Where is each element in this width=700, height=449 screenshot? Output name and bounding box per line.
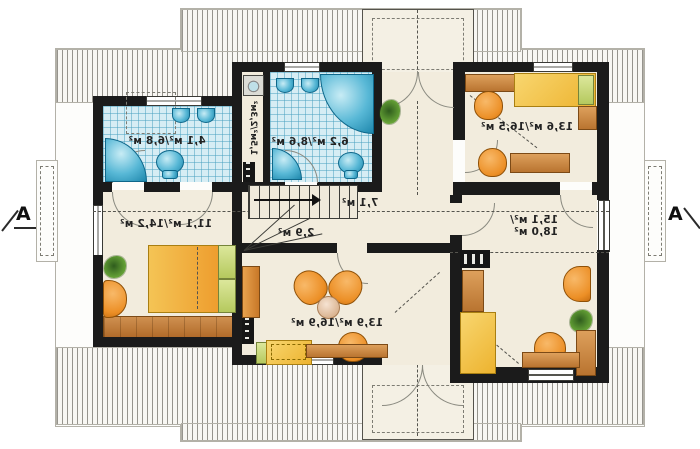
wall-bedroom-top-right-bottom-a [453, 182, 560, 195]
desk-living [306, 344, 388, 358]
chair-top-right-1 [474, 91, 503, 120]
wall-bedroom-top-right-left [453, 72, 465, 140]
stair-arrow-head [312, 194, 321, 206]
coffee-table-living [317, 296, 340, 319]
window-bath-main [284, 62, 320, 72]
dresser-top-right [578, 106, 597, 130]
wall-bedroom-left-bottom [93, 337, 242, 347]
window-bedroom-top-right [533, 62, 573, 72]
area-label-bedroom-left: 11,1 м²/14,2 м² [120, 218, 212, 230]
bed-left [148, 245, 220, 313]
area-label-bath-main: 6,2 м²/8,6 м² [271, 136, 348, 148]
area-label-bedroom-right-line1: 15,1 м²/ [510, 214, 558, 226]
section-underline-left [14, 227, 36, 229]
toilet2-base-icon [344, 170, 358, 179]
wall-dressing-left [232, 62, 242, 192]
wall-left-upper [93, 96, 103, 205]
wardrobe-bedroom-right [462, 270, 484, 312]
skylight-bath-top-left [126, 92, 176, 134]
wall-right-upper [597, 62, 609, 200]
shelf-unit-living [242, 318, 254, 344]
area-label-bedroom-top-right: 13,6 м²/16,5 м² [481, 121, 573, 133]
bay-left-dashed [40, 166, 54, 256]
area-label-bedroom-right: 15,1 м²/ 18,0 м² [510, 214, 558, 238]
area-label-bath-top-left: 4,1 м²/6,8 м² [128, 135, 205, 147]
window-bedroom-right-bottom [528, 369, 574, 381]
bidet-icon [197, 108, 215, 123]
desk-top-right [465, 74, 519, 92]
armchair-right [563, 266, 591, 302]
area-label-bedroom-right-line2: 18,0 м² [510, 226, 558, 238]
wall-right-lower [597, 250, 609, 383]
section-line-right [683, 207, 700, 229]
area-label-dressing: 1,5м²/2,3м² [248, 101, 258, 156]
wardrobe-living-left [242, 266, 260, 318]
wall-left-lower [93, 255, 103, 347]
bay-right-dashed [648, 166, 662, 256]
window-right [598, 200, 610, 252]
bedroom-left-plank-strip [103, 316, 234, 339]
bed-right [460, 312, 496, 374]
wall-bath-row-a [103, 182, 112, 192]
tv-hifi-detail [464, 254, 486, 264]
shelf-unit-dressing [243, 162, 255, 182]
bed-left-headboard-2 [218, 279, 236, 313]
chair-top-right-2 [478, 148, 507, 177]
dresser-living-inset [271, 344, 306, 360]
vestibule-centerline [417, 101, 418, 195]
section-marker-left: A [16, 203, 31, 225]
bidet2-icon [301, 78, 319, 93]
area-label-living: 13,9 м²/16,9 м² [291, 317, 383, 329]
washing-machine-icon [243, 75, 264, 96]
wall-top-right [453, 62, 609, 72]
floor-plan: 4,1 м²/6,8 м² 1,5м²/2,3м² 6,2 м²/8,6 м² … [0, 0, 700, 449]
wall-hung-toilet-icon [172, 108, 190, 123]
area-label-staircase: 2,9 м² [278, 227, 315, 239]
bed-left-headboard [218, 245, 236, 279]
wall-hung-toilet2-icon [276, 78, 294, 93]
wall-living-top-b [367, 243, 462, 253]
wall-bath-row-b [144, 182, 180, 192]
bed-top-right-pillow [578, 75, 594, 105]
area-label-hall: 7,1 м² [342, 197, 379, 209]
toilet-base-icon [162, 170, 178, 179]
section-marker-right: A [668, 203, 683, 225]
window-bedroom-left [93, 205, 103, 257]
wall-bedroom-right-left-a [450, 195, 462, 203]
wall-dressing-bath-divider [263, 72, 270, 182]
dormer-top-dashed [372, 18, 464, 70]
desk-bedroom-right [522, 352, 580, 368]
desk-top-right-2 [510, 153, 570, 173]
stair-arrow-line [254, 199, 312, 201]
bed-left-fold-line [197, 247, 198, 309]
